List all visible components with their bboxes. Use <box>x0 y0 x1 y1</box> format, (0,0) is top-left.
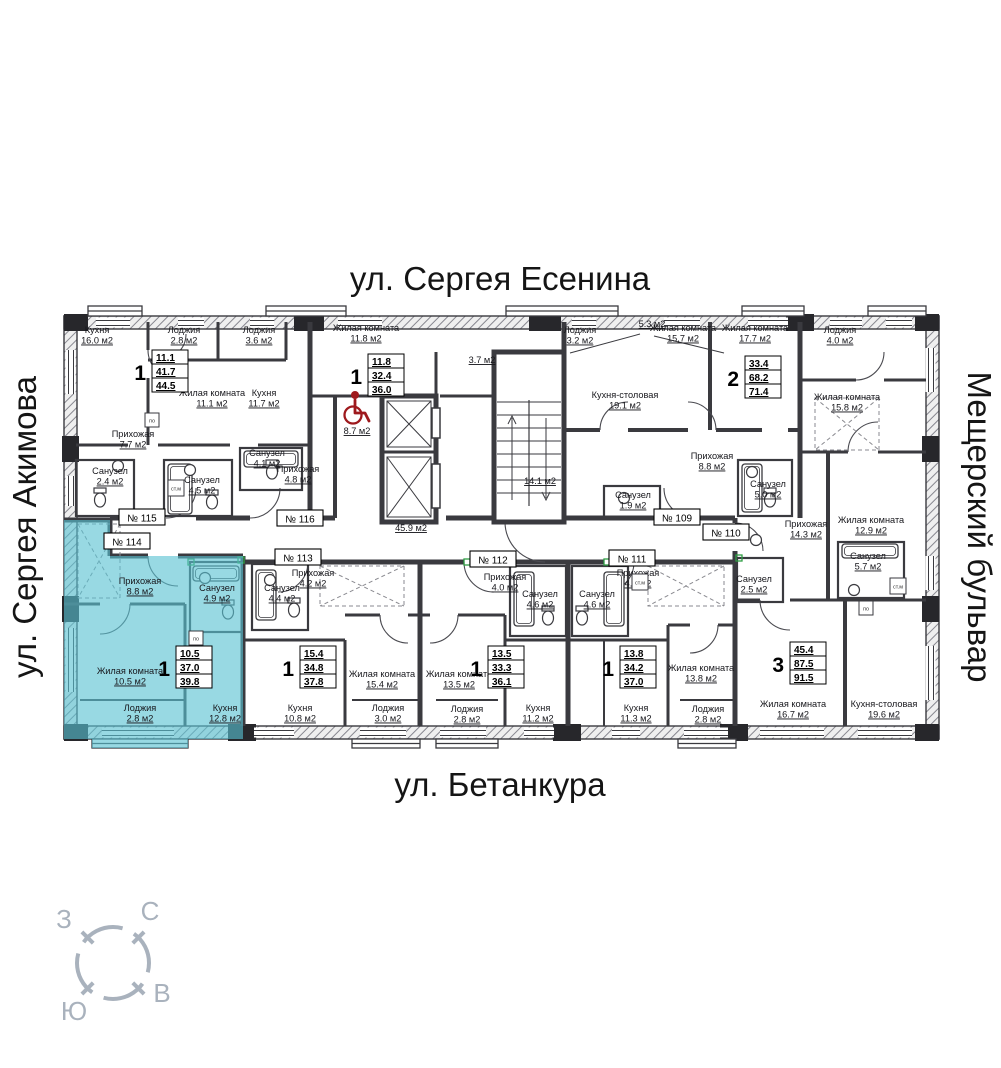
room-label: Кухня-столовая <box>592 390 659 400</box>
room-label: Жилая комната <box>814 392 881 402</box>
apartment-stat-value: 34.2 <box>624 663 644 674</box>
room-area: 11.8 м2 <box>350 334 381 344</box>
washer-label: ст.м <box>893 585 903 591</box>
room-label: Лоджия <box>372 703 405 713</box>
room-area: 3.2 м2 <box>567 336 594 346</box>
room-area: 15.7 м2 <box>667 334 699 344</box>
room-area: 4.6 м2 <box>584 600 611 610</box>
apartment-stat-value: 36.1 <box>492 677 512 688</box>
room-area: 2.5 м2 <box>741 585 768 595</box>
room-area: 8.8 м2 <box>127 587 154 597</box>
room-area: 45.9 м2 <box>395 523 427 533</box>
room-area: 13.8 м2 <box>685 674 717 684</box>
room-area: 5.0 м2 <box>755 490 782 500</box>
room-area: 2.8 м2 <box>127 714 154 724</box>
apartment-stat-value: 45.4 <box>794 645 814 656</box>
room-label: Санузел <box>249 448 285 458</box>
room-label: Жилая комната <box>333 323 400 333</box>
room-area: 11.3 м2 <box>620 714 651 724</box>
room-area: 12.9 м2 <box>855 526 887 536</box>
room-label: Прихожая <box>691 451 734 461</box>
room-label: Лоджия <box>124 703 157 713</box>
room-label: Жилая комната <box>722 323 789 333</box>
room-label: Лоджия <box>168 325 201 335</box>
room-area: 8.7 м2 <box>344 426 371 436</box>
room-label: Жилая комната <box>650 323 717 333</box>
floor-plan: ул. Сергея Есенина ул. Бетанкура ул. Сер… <box>0 0 1001 1068</box>
apartment-rooms-count: 1 <box>134 362 146 385</box>
room-label: Жилая комната <box>838 515 905 525</box>
apartment-stat-value: 10.5 <box>180 649 200 660</box>
apartment-rooms-count: 3 <box>772 654 784 677</box>
compass-east: В <box>153 978 170 1008</box>
room-area: 14.3 м2 <box>790 530 822 540</box>
compass-north: С <box>141 896 160 926</box>
room-label: Прихожая <box>484 572 527 582</box>
room-area: 16.0 м2 <box>81 336 113 346</box>
room-area: 2.4 м2 <box>97 477 124 487</box>
apartment-stat-value: 13.5 <box>492 649 512 660</box>
apartment-stat-value: 39.8 <box>180 677 200 688</box>
apartment-stat-value: 11.1 <box>156 353 175 364</box>
room-label: Кухня <box>252 388 277 398</box>
stove-label: по <box>863 607 869 613</box>
apartment-stat-value: 37.8 <box>304 677 324 688</box>
room-area: 5.7 м2 <box>855 562 882 572</box>
room-label: Лоджия <box>243 325 276 335</box>
apartment-stat-value: 41.7 <box>156 367 176 378</box>
apartment-stat-value: 11.8 <box>372 357 391 368</box>
street-top: ул. Сергея Есенина <box>350 260 651 297</box>
apartment-badge: № 112 <box>478 556 508 567</box>
apartment-badge: № 113 <box>283 554 313 565</box>
apartment-rooms-count: 1 <box>470 658 482 681</box>
room-area: 14.1 м2 <box>524 476 556 486</box>
room-area: 8.8 м2 <box>699 462 726 472</box>
room-area: 4.5 м2 <box>189 486 216 496</box>
room-area: 19.1 м2 <box>609 401 641 411</box>
room-label: Прихожая <box>119 576 162 586</box>
room-area: 4.6 м2 <box>527 600 554 610</box>
apartment-stat-value: 33.3 <box>492 663 512 674</box>
room-label: Прихожая <box>292 568 335 578</box>
room-label: Жилая комната <box>760 699 827 709</box>
room-label: Санузел <box>522 589 558 599</box>
apartment-stat-value: 32.4 <box>372 371 392 382</box>
room-label: Прихожая <box>112 429 155 439</box>
room-label: Санузел <box>615 490 651 500</box>
street-left: ул. Сергея Акимова <box>6 375 43 678</box>
washer-label: ст.м <box>635 581 645 587</box>
room-area: 4.8 м2 <box>285 475 312 485</box>
room-label: Лоджия <box>824 325 857 335</box>
apartment-stat-value: 33.4 <box>749 359 769 370</box>
room-area: 10.8 м2 <box>284 714 316 724</box>
apartment-stat-value: 91.5 <box>794 673 814 684</box>
room-label: Жилая комната <box>668 663 735 673</box>
room-area: 4.9 м2 <box>204 594 231 604</box>
compass-south: Ю <box>61 996 87 1026</box>
apartment-stat-value: 37.0 <box>180 663 200 674</box>
room-label: Прихожая <box>277 464 320 474</box>
room-label: Санузел <box>264 583 300 593</box>
room-area: 4.0 м2 <box>827 336 854 346</box>
room-area: 15.8 м2 <box>831 403 863 413</box>
room-label: Лоджия <box>451 704 484 714</box>
apartment-rooms-count: 1 <box>602 658 614 681</box>
apartment-stat-value: 13.8 <box>624 649 644 660</box>
apartment-badge: № 115 <box>127 514 157 525</box>
stove-label: по <box>149 419 155 425</box>
apartment-stat-value: 44.5 <box>156 381 176 392</box>
compass-west: З <box>56 904 72 934</box>
room-label: Санузел <box>736 574 772 584</box>
washer-label: ст.м <box>171 487 181 493</box>
apartment-stat-value: 68.2 <box>749 373 769 384</box>
apartment-stat-value: 34.8 <box>304 663 324 674</box>
room-label: Жилая комната <box>97 666 164 676</box>
room-area: 2.8 м2 <box>454 715 481 725</box>
room-area: 19.6 м2 <box>868 710 900 720</box>
room-area: 13.5 м2 <box>443 680 475 690</box>
room-label: Кухня <box>624 703 649 713</box>
room-label: Санузел <box>184 475 220 485</box>
room-label: Кухня-столовая <box>851 699 918 709</box>
room-label: Санузел <box>750 479 786 489</box>
room-label: Лоджия <box>564 325 597 335</box>
room-area: 12.8 м2 <box>209 714 241 724</box>
room-label: Кухня <box>85 325 110 335</box>
room-label: Кухня <box>288 703 313 713</box>
room-area: 3.7 м2 <box>469 355 496 365</box>
compass-rose: З С В Ю <box>56 896 171 1026</box>
room-area: 1.9 м2 <box>620 501 647 511</box>
apartment-rooms-count: 2 <box>727 368 739 391</box>
room-label: Лоджия <box>692 704 725 714</box>
room-area: 15.4 м2 <box>366 680 398 690</box>
room-area: 16.7 м2 <box>777 710 809 720</box>
room-area: 10.5 м2 <box>114 677 146 687</box>
room-area: 2.8 м2 <box>695 715 722 725</box>
room-area: 3.0 м2 <box>375 714 402 724</box>
room-label: Жилая комната <box>349 669 416 679</box>
apartment-rooms-count: 1 <box>350 366 362 389</box>
apartment-badge: № 111 <box>618 555 647 566</box>
room-label: Санузел <box>199 583 235 593</box>
apartment-badge: № 109 <box>662 514 693 525</box>
room-area: 17.7 м2 <box>739 334 771 344</box>
apartment-badge: № 110 <box>711 529 741 540</box>
room-area: 2.8 м2 <box>171 336 198 346</box>
room-label: Прихожая <box>785 519 828 529</box>
room-area: 4.4 м2 <box>269 594 296 604</box>
apartment-rooms-count: 1 <box>158 658 170 681</box>
room-label: Санузел <box>850 551 886 561</box>
room-label: Санузел <box>92 466 128 476</box>
elevator-shafts <box>382 396 440 522</box>
room-label: Жилая комната <box>179 388 246 398</box>
apartment-stat-value: 87.5 <box>794 659 814 670</box>
room-area: 11.1 м2 <box>196 399 227 409</box>
room-area: 11.7 м2 <box>248 399 279 409</box>
apartment-badge: № 114 <box>112 538 142 549</box>
stove-label: по <box>193 637 199 643</box>
apartment-badge: № 116 <box>285 515 315 526</box>
apartment-stat-value: 71.4 <box>749 387 769 398</box>
room-area: 7.7 м2 <box>120 440 147 450</box>
street-bottom: ул. Бетанкура <box>394 766 606 803</box>
room-label: Жилая комната <box>426 669 493 679</box>
room-area: 4.0 м2 <box>492 583 519 593</box>
apartment-stat-value: 36.0 <box>372 385 392 396</box>
apartment-stat-value: 15.4 <box>304 649 324 660</box>
street-right: Мещерский бульвар <box>961 372 998 683</box>
staircase <box>494 352 564 522</box>
room-area: 4.2 м2 <box>300 579 327 589</box>
room-area: 3.6 м2 <box>246 336 273 346</box>
apartment-rooms-count: 1 <box>282 658 294 681</box>
room-area: 11.2 м2 <box>522 714 553 724</box>
room-label: Кухня <box>526 703 551 713</box>
room-label: Санузел <box>579 589 615 599</box>
room-label: Кухня <box>213 703 238 713</box>
apartment-stat-value: 37.0 <box>624 677 644 688</box>
